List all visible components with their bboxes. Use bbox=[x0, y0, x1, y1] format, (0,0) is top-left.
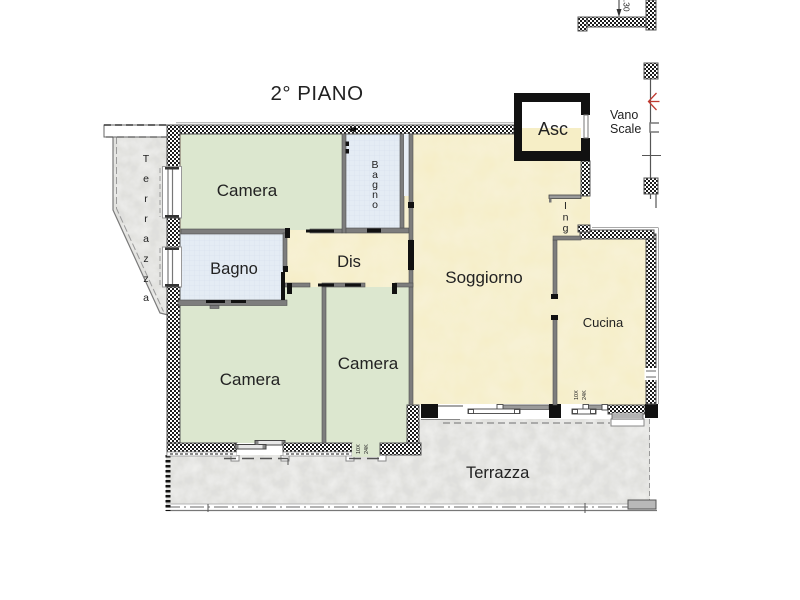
svg-text:g: g bbox=[563, 223, 569, 235]
svg-text:o: o bbox=[372, 199, 378, 211]
svg-text:Cucina: Cucina bbox=[583, 315, 624, 330]
svg-text:Camera: Camera bbox=[220, 370, 281, 389]
svg-text:z: z bbox=[143, 273, 148, 285]
svg-text:2° PIANO: 2° PIANO bbox=[270, 82, 363, 105]
svg-text:24K: 24K bbox=[582, 390, 588, 400]
svg-text:a: a bbox=[143, 292, 149, 304]
svg-text:Scale: Scale bbox=[610, 122, 641, 136]
svg-text:I: I bbox=[564, 200, 567, 212]
svg-text:Camera: Camera bbox=[217, 181, 278, 200]
svg-text:Vano: Vano bbox=[610, 108, 638, 122]
svg-text:Asc: Asc bbox=[538, 119, 568, 139]
svg-text:T: T bbox=[143, 153, 150, 165]
svg-text:a: a bbox=[143, 233, 149, 245]
svg-text:Camera: Camera bbox=[338, 354, 399, 373]
svg-text:Bagno: Bagno bbox=[210, 260, 258, 278]
svg-text:e: e bbox=[143, 173, 149, 185]
svg-text:24K: 24K bbox=[364, 444, 370, 454]
svg-text:10X: 10X bbox=[356, 444, 362, 454]
svg-text:r: r bbox=[144, 213, 148, 225]
svg-text:0.30: 0.30 bbox=[622, 0, 632, 12]
svg-text:Soggiorno: Soggiorno bbox=[445, 268, 523, 287]
svg-text:Dis: Dis bbox=[337, 253, 361, 271]
svg-text:10X: 10X bbox=[574, 390, 580, 400]
svg-text:Terrazza: Terrazza bbox=[466, 464, 530, 482]
svg-text:r: r bbox=[144, 193, 148, 205]
svg-text:z: z bbox=[143, 253, 148, 265]
